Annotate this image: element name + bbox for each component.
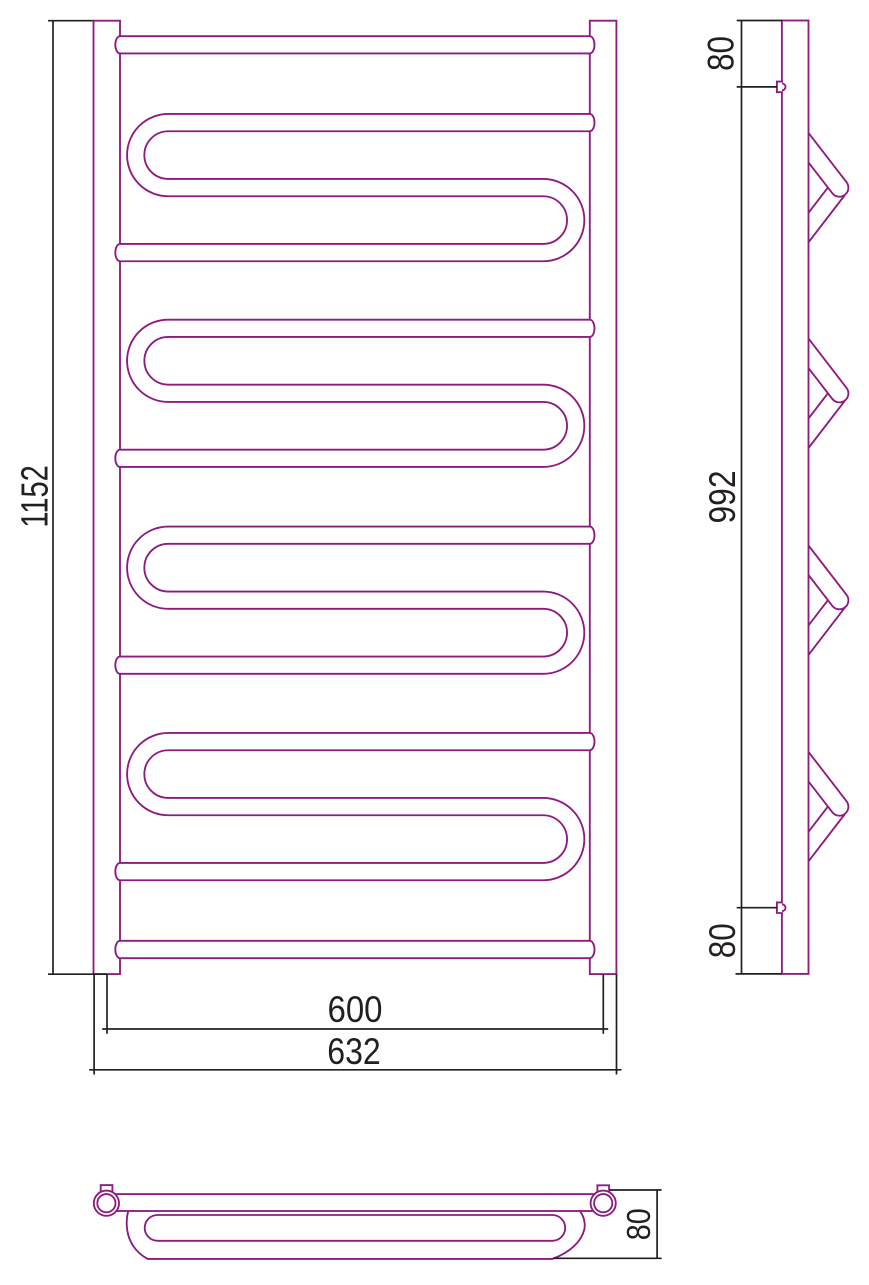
svg-text:1152: 1152 xyxy=(15,465,57,528)
svg-text:600: 600 xyxy=(328,989,383,1030)
svg-text:80: 80 xyxy=(620,1208,657,1240)
svg-text:80: 80 xyxy=(702,923,743,958)
svg-text:632: 632 xyxy=(327,1031,381,1072)
svg-text:80: 80 xyxy=(701,36,742,71)
svg-text:992: 992 xyxy=(702,471,743,524)
